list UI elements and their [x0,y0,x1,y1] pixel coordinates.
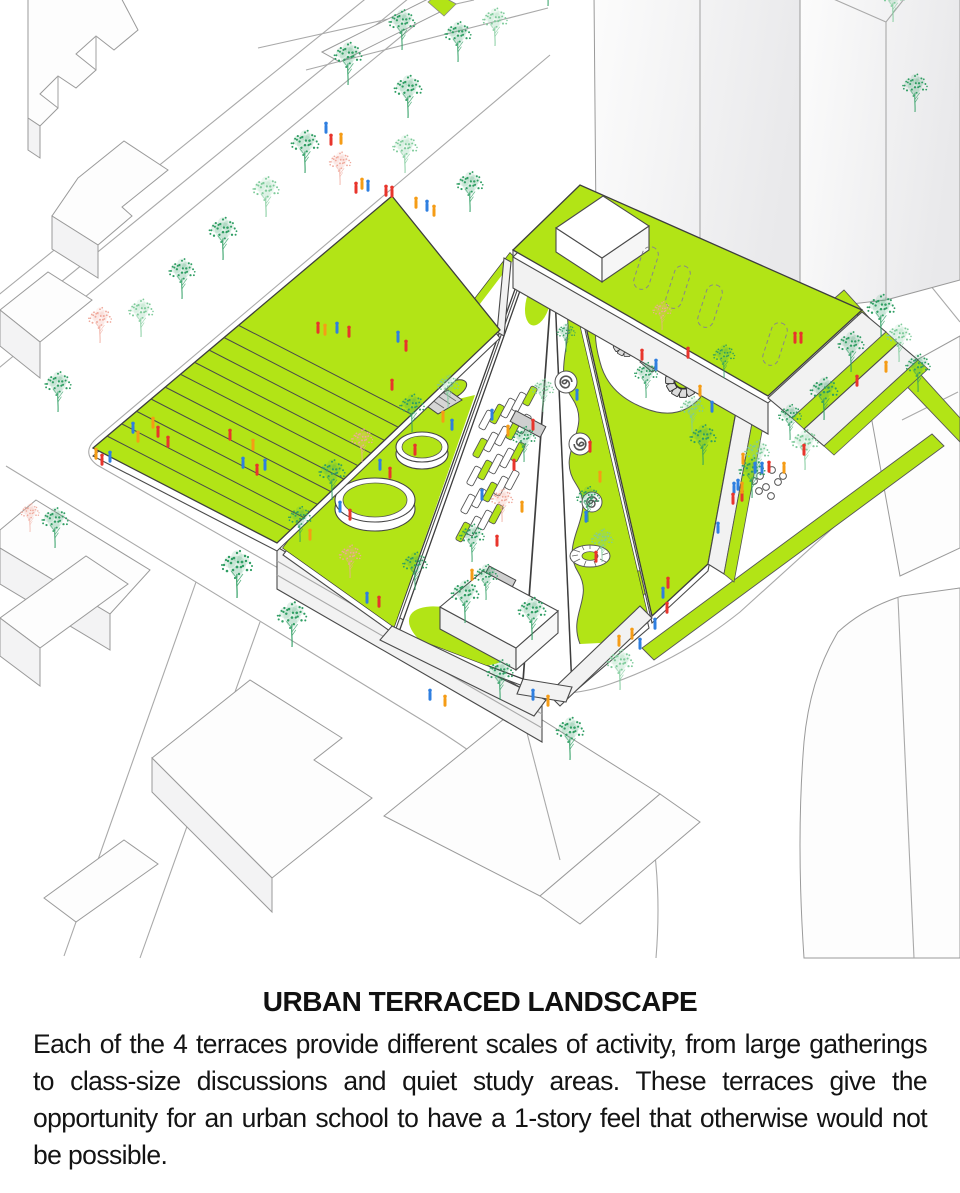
person-icon [166,436,170,447]
person-icon [450,419,454,430]
person-icon [506,425,510,436]
person-icon [793,332,797,343]
person-icon [108,451,112,462]
tree-icon [209,217,238,260]
person-icon [94,448,98,459]
raised-lawn-cylinder-large [335,478,415,531]
person-icon [255,464,259,475]
person-icon [413,444,417,455]
person-icon [136,431,140,442]
person-icon [584,511,588,522]
person-icon [339,133,343,144]
person-icon [802,444,806,455]
person-icon [100,454,104,465]
person-icon [799,332,803,343]
person-icon [338,501,342,512]
tree-icon [44,371,71,412]
person-icon [151,417,155,428]
person-icon [131,422,135,433]
person-icon [308,529,312,540]
tree-icon [168,258,195,299]
building-left-block-3 [0,272,92,378]
person-icon [531,419,535,430]
person-icon [251,439,255,450]
tree-icon [534,0,561,6]
person-icon [316,322,320,333]
person-icon [366,180,370,191]
person-icon [480,489,484,500]
person-icon [470,569,474,580]
stepping-stone [780,473,787,480]
caption-title: URBAN TERRACED LANDSCAPE [33,986,927,1018]
person-icon [640,349,644,360]
tree-icon [394,75,423,118]
tree-icon [128,299,154,337]
person-icon [617,635,621,646]
person-icon [575,389,579,400]
person-icon [414,197,418,208]
person-icon [740,482,744,493]
person-icon [396,331,400,342]
person-icon [495,535,499,546]
caption-body: Each of the 4 terraces provide different… [33,1026,927,1174]
building-foreground-a [152,680,372,912]
person-icon [377,596,381,607]
person-icon [884,361,888,372]
building-top-left-jagged [28,0,138,158]
architectural-axonometric-illustration [0,0,960,965]
person-icon [228,429,232,440]
tree-icon [252,176,279,217]
stepping-stone [768,493,775,500]
tree-icon [329,151,351,185]
person-icon [443,695,447,706]
person-icon [598,471,602,482]
person-icon [156,426,160,437]
person-icon [329,134,333,145]
person-icon [335,322,339,333]
tree-icon [88,307,112,343]
person-icon [710,401,714,412]
person-icon [741,453,745,464]
tree-icon [444,21,471,62]
stepping-stone [775,479,782,486]
person-icon [855,375,859,386]
person-icon [666,577,670,588]
person-icon [736,479,740,490]
person-icon [594,551,598,562]
caption-block: URBAN TERRACED LANDSCAPE Each of the 4 t… [0,986,960,1174]
person-icon [378,459,382,470]
person-icon [432,205,436,216]
person-icon [732,482,736,493]
person-icon [490,409,494,420]
person-icon [263,459,267,470]
person-icon [323,324,327,335]
person-icon [404,340,408,351]
tree-icon [221,550,253,598]
person-icon [782,462,786,473]
person-icon [686,347,690,358]
person-icon [360,178,364,189]
tree-icon [291,130,320,173]
person-icon [630,628,634,639]
person-icon [365,592,369,603]
tree-icon [392,135,418,173]
person-icon [347,326,351,337]
person-icon [324,122,328,133]
person-icon [654,359,658,370]
person-icon [520,501,524,512]
person-icon [348,509,352,520]
person-icon [753,462,757,473]
person-icon [425,200,429,211]
raised-lawn-cylinder-small [396,432,448,469]
person-icon [390,186,394,197]
person-icon [665,602,669,613]
person-icon [384,185,388,196]
person-icon [588,441,592,452]
person-icon [698,385,702,396]
person-icon [638,638,642,649]
tree-icon [482,8,508,46]
person-icon [661,587,665,598]
person-icon [512,459,516,470]
person-icon [441,411,445,422]
person-icon [716,522,720,533]
person-icon [354,182,358,193]
person-icon [546,695,550,706]
person-icon [767,461,771,472]
tree-icon [456,171,483,212]
person-icon [653,618,657,629]
stepping-stone [756,488,763,495]
person-icon [390,379,394,390]
building-bottom-right [800,588,960,958]
person-icon [428,689,432,700]
tree-icon [277,601,307,647]
person-icon [760,462,764,473]
stepping-stone [763,484,770,491]
person-icon [731,493,735,504]
person-icon [388,467,392,478]
person-icon [531,689,535,700]
tower-right-2 [800,0,960,310]
person-icon [241,457,245,468]
